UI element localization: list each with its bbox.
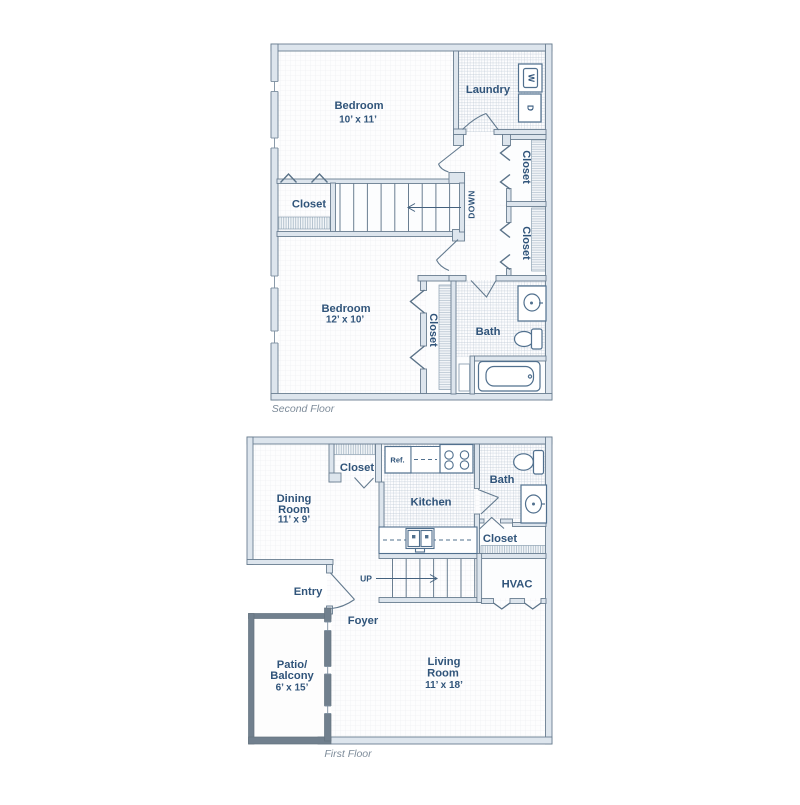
svg-text:Closet: Closet [292,199,326,211]
svg-text:11’ x 9’: 11’ x 9’ [278,515,310,526]
svg-text:Closet: Closet [520,226,532,260]
svg-text:Room: Room [427,668,459,680]
svg-text:Ref.: Ref. [390,456,404,465]
svg-text:Closet: Closet [340,462,374,474]
svg-text:Closet: Closet [483,533,517,545]
svg-text:Foyer: Foyer [348,615,379,627]
svg-text:First Floor: First Floor [324,748,372,760]
svg-text:Bath: Bath [476,326,501,338]
svg-text:Bedroom: Bedroom [334,100,383,112]
svg-text:W: W [526,74,536,83]
svg-text:Laundry: Laundry [466,84,511,96]
svg-text:Kitchen: Kitchen [410,497,451,509]
svg-text:Closet: Closet [427,313,439,347]
svg-text:Closet: Closet [520,150,532,184]
svg-text:11’ x 18’: 11’ x 18’ [425,680,463,691]
svg-text:Second Floor: Second Floor [272,403,335,415]
svg-text:D: D [525,105,535,111]
svg-text:10’ x 11’: 10’ x 11’ [339,115,377,126]
svg-text:Bath: Bath [490,474,515,486]
svg-text:Balcony: Balcony [270,670,314,682]
svg-text:Bedroom: Bedroom [321,303,370,315]
svg-text:12’ x 10’: 12’ x 10’ [326,315,365,326]
svg-text:Living: Living [428,656,461,668]
svg-text:Entry: Entry [294,586,323,598]
svg-text:DOWN: DOWN [466,190,476,219]
svg-text:UP: UP [360,574,372,584]
svg-text:HVAC: HVAC [502,579,533,591]
svg-text:6’ x 15’: 6’ x 15’ [276,683,309,694]
